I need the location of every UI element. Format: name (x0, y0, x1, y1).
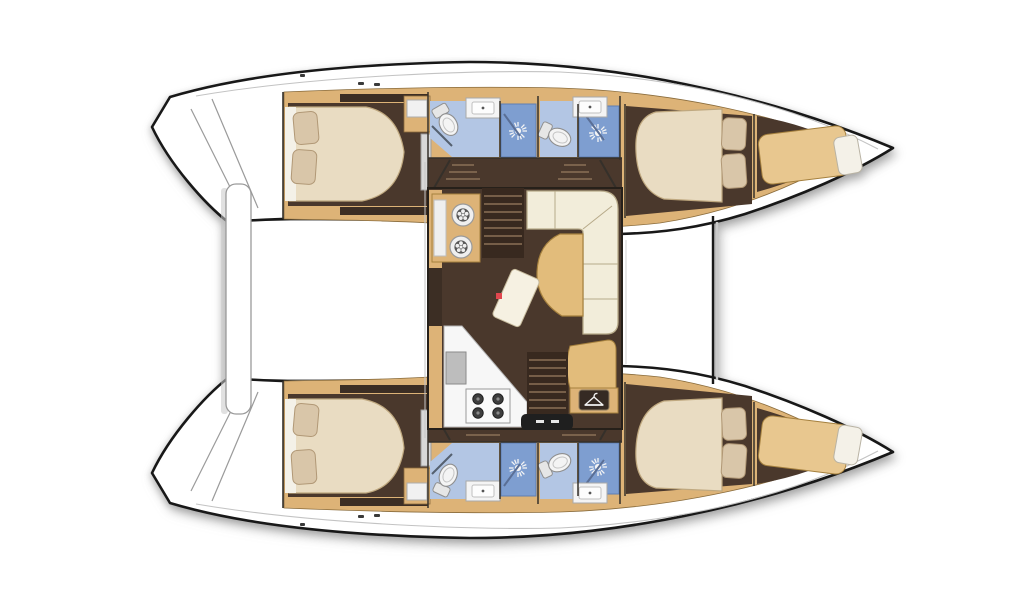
port-hull-corridor (428, 158, 622, 190)
bathroom-sink (466, 98, 500, 118)
stove (466, 389, 510, 423)
hanger-icon (579, 390, 609, 410)
accent-marker (496, 293, 502, 299)
door-handle (551, 420, 559, 423)
galley-sink (446, 352, 466, 384)
saloon-entry-door (521, 414, 573, 430)
pillow (293, 111, 320, 145)
pillow (721, 153, 747, 189)
door-handle (536, 420, 544, 423)
starboard-companionway (527, 352, 568, 418)
port-forward-double-bed (636, 109, 722, 202)
saloon (428, 188, 622, 430)
pillow (291, 149, 317, 185)
port-companionway (482, 188, 524, 258)
port-aft-cabin-shelf (340, 207, 428, 215)
stool-icon (452, 204, 474, 226)
burner-icon (493, 394, 503, 404)
port-aft-bathroom (430, 98, 536, 157)
pillow (721, 407, 747, 440)
cockpit-table (226, 184, 251, 414)
saloon-side-cabinet-dark (429, 268, 442, 326)
burner-icon (473, 408, 483, 418)
vanity-top (407, 483, 427, 500)
bathroom-sink (466, 481, 500, 501)
catamaran-boat (152, 62, 893, 538)
pillow (293, 403, 320, 437)
floorplan-canvas (0, 0, 1024, 600)
burner-icon (473, 394, 483, 404)
pillow (721, 443, 747, 479)
nav-desk-top (434, 200, 446, 256)
pillow (721, 117, 747, 150)
vanity-top (407, 100, 427, 117)
stool-icon (450, 236, 472, 258)
burner-icon (493, 408, 503, 418)
starboard-aft-cabin-shelf (340, 385, 428, 393)
catamaran-floorplan-page (0, 0, 1024, 600)
starboard-aft-bathroom (430, 443, 536, 501)
starboard-forward-double-bed (636, 398, 722, 491)
chaise-pad (567, 340, 616, 388)
pillow (291, 449, 317, 485)
